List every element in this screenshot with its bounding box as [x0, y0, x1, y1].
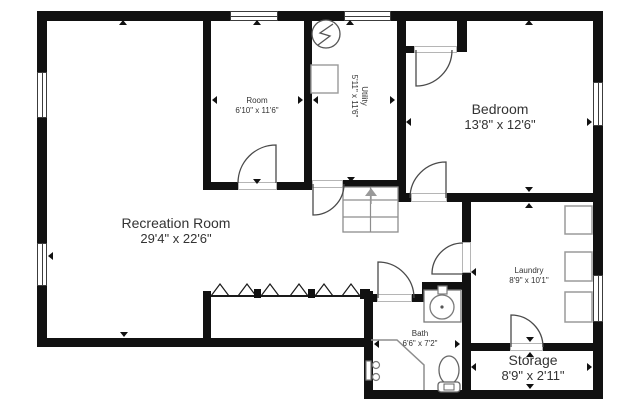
room-label-bath: Bath6'6" x 7'2": [403, 329, 438, 349]
room-label-utility: Utility5'11" x 11'6": [349, 75, 369, 118]
room-name: Laundry: [509, 266, 548, 276]
room-label-laundry: Laundry8'9" x 10'1": [509, 266, 548, 286]
room-dimensions: 29'4" x 22'6": [122, 231, 231, 247]
room-dimensions: 6'10" x 11'6": [235, 106, 278, 116]
room-label-room: Room6'10" x 11'6": [235, 96, 278, 116]
room-name: Room: [235, 96, 278, 106]
room-dimensions: 6'6" x 7'2": [403, 339, 438, 349]
room-dimensions: 8'9" x 2'11": [501, 368, 564, 384]
room-name: Utility: [359, 75, 369, 118]
room-dimensions: 13'8" x 12'6": [464, 117, 535, 133]
floor-plan: Room6'10" x 11'6"Utility5'11" x 11'6"Bed…: [0, 0, 640, 412]
labels-layer: Room6'10" x 11'6"Utility5'11" x 11'6"Bed…: [0, 0, 640, 412]
room-label-recreation-room: Recreation Room29'4" x 22'6": [122, 215, 231, 247]
room-label-storage: Storage8'9" x 2'11": [501, 352, 564, 384]
room-name: Storage: [501, 352, 564, 368]
room-dimensions: 8'9" x 10'1": [509, 276, 548, 286]
room-name: Bedroom: [464, 101, 535, 117]
room-name: Bath: [403, 329, 438, 339]
room-label-bedroom: Bedroom13'8" x 12'6": [464, 101, 535, 133]
room-name: Recreation Room: [122, 215, 231, 231]
room-dimensions: 5'11" x 11'6": [349, 75, 359, 118]
